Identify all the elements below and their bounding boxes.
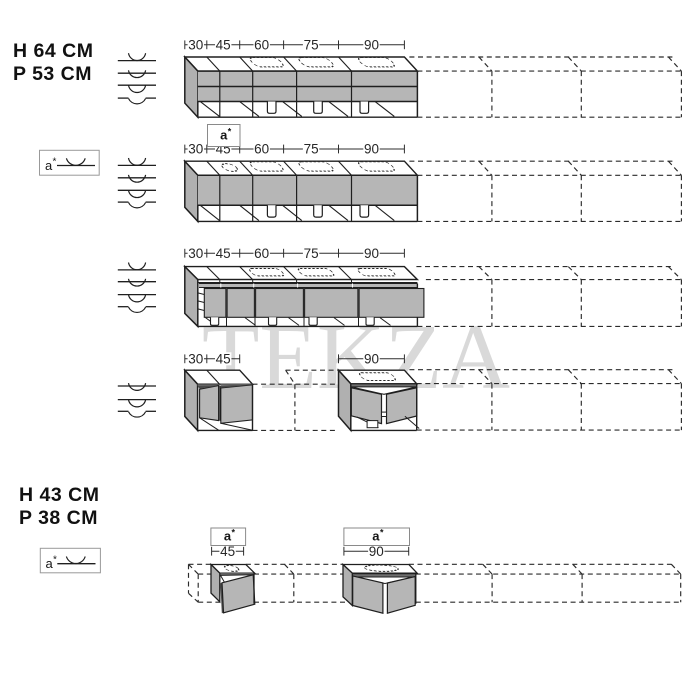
svg-text:60: 60 [254,37,269,52]
svg-text:45: 45 [216,246,231,261]
svg-text:P 53 CM: P 53 CM [13,63,92,85]
svg-text:75: 75 [304,142,319,157]
svg-text:90: 90 [364,351,379,366]
svg-text:60: 60 [254,142,269,157]
svg-text:90: 90 [364,246,379,261]
svg-text:75: 75 [304,37,319,52]
svg-text:90: 90 [364,37,379,52]
svg-text:30: 30 [188,351,203,366]
svg-text:90: 90 [364,142,379,157]
svg-text:*: * [53,157,57,168]
svg-text:*: * [232,528,236,538]
svg-text:30: 30 [188,37,203,52]
svg-text:45: 45 [216,351,231,366]
svg-text:H 64 CM: H 64 CM [13,40,93,62]
svg-text:45: 45 [220,544,235,559]
svg-text:45: 45 [216,37,231,52]
svg-text:30: 30 [188,246,203,261]
svg-text:P 38 CM: P 38 CM [19,507,98,529]
svg-text:30: 30 [188,142,203,157]
svg-text:*: * [380,528,384,538]
svg-text:*: * [228,127,232,137]
svg-text:H 43 CM: H 43 CM [19,484,99,506]
svg-text:75: 75 [304,246,319,261]
svg-text:*: * [53,555,57,566]
svg-text:90: 90 [369,544,384,559]
svg-text:60: 60 [254,246,269,261]
